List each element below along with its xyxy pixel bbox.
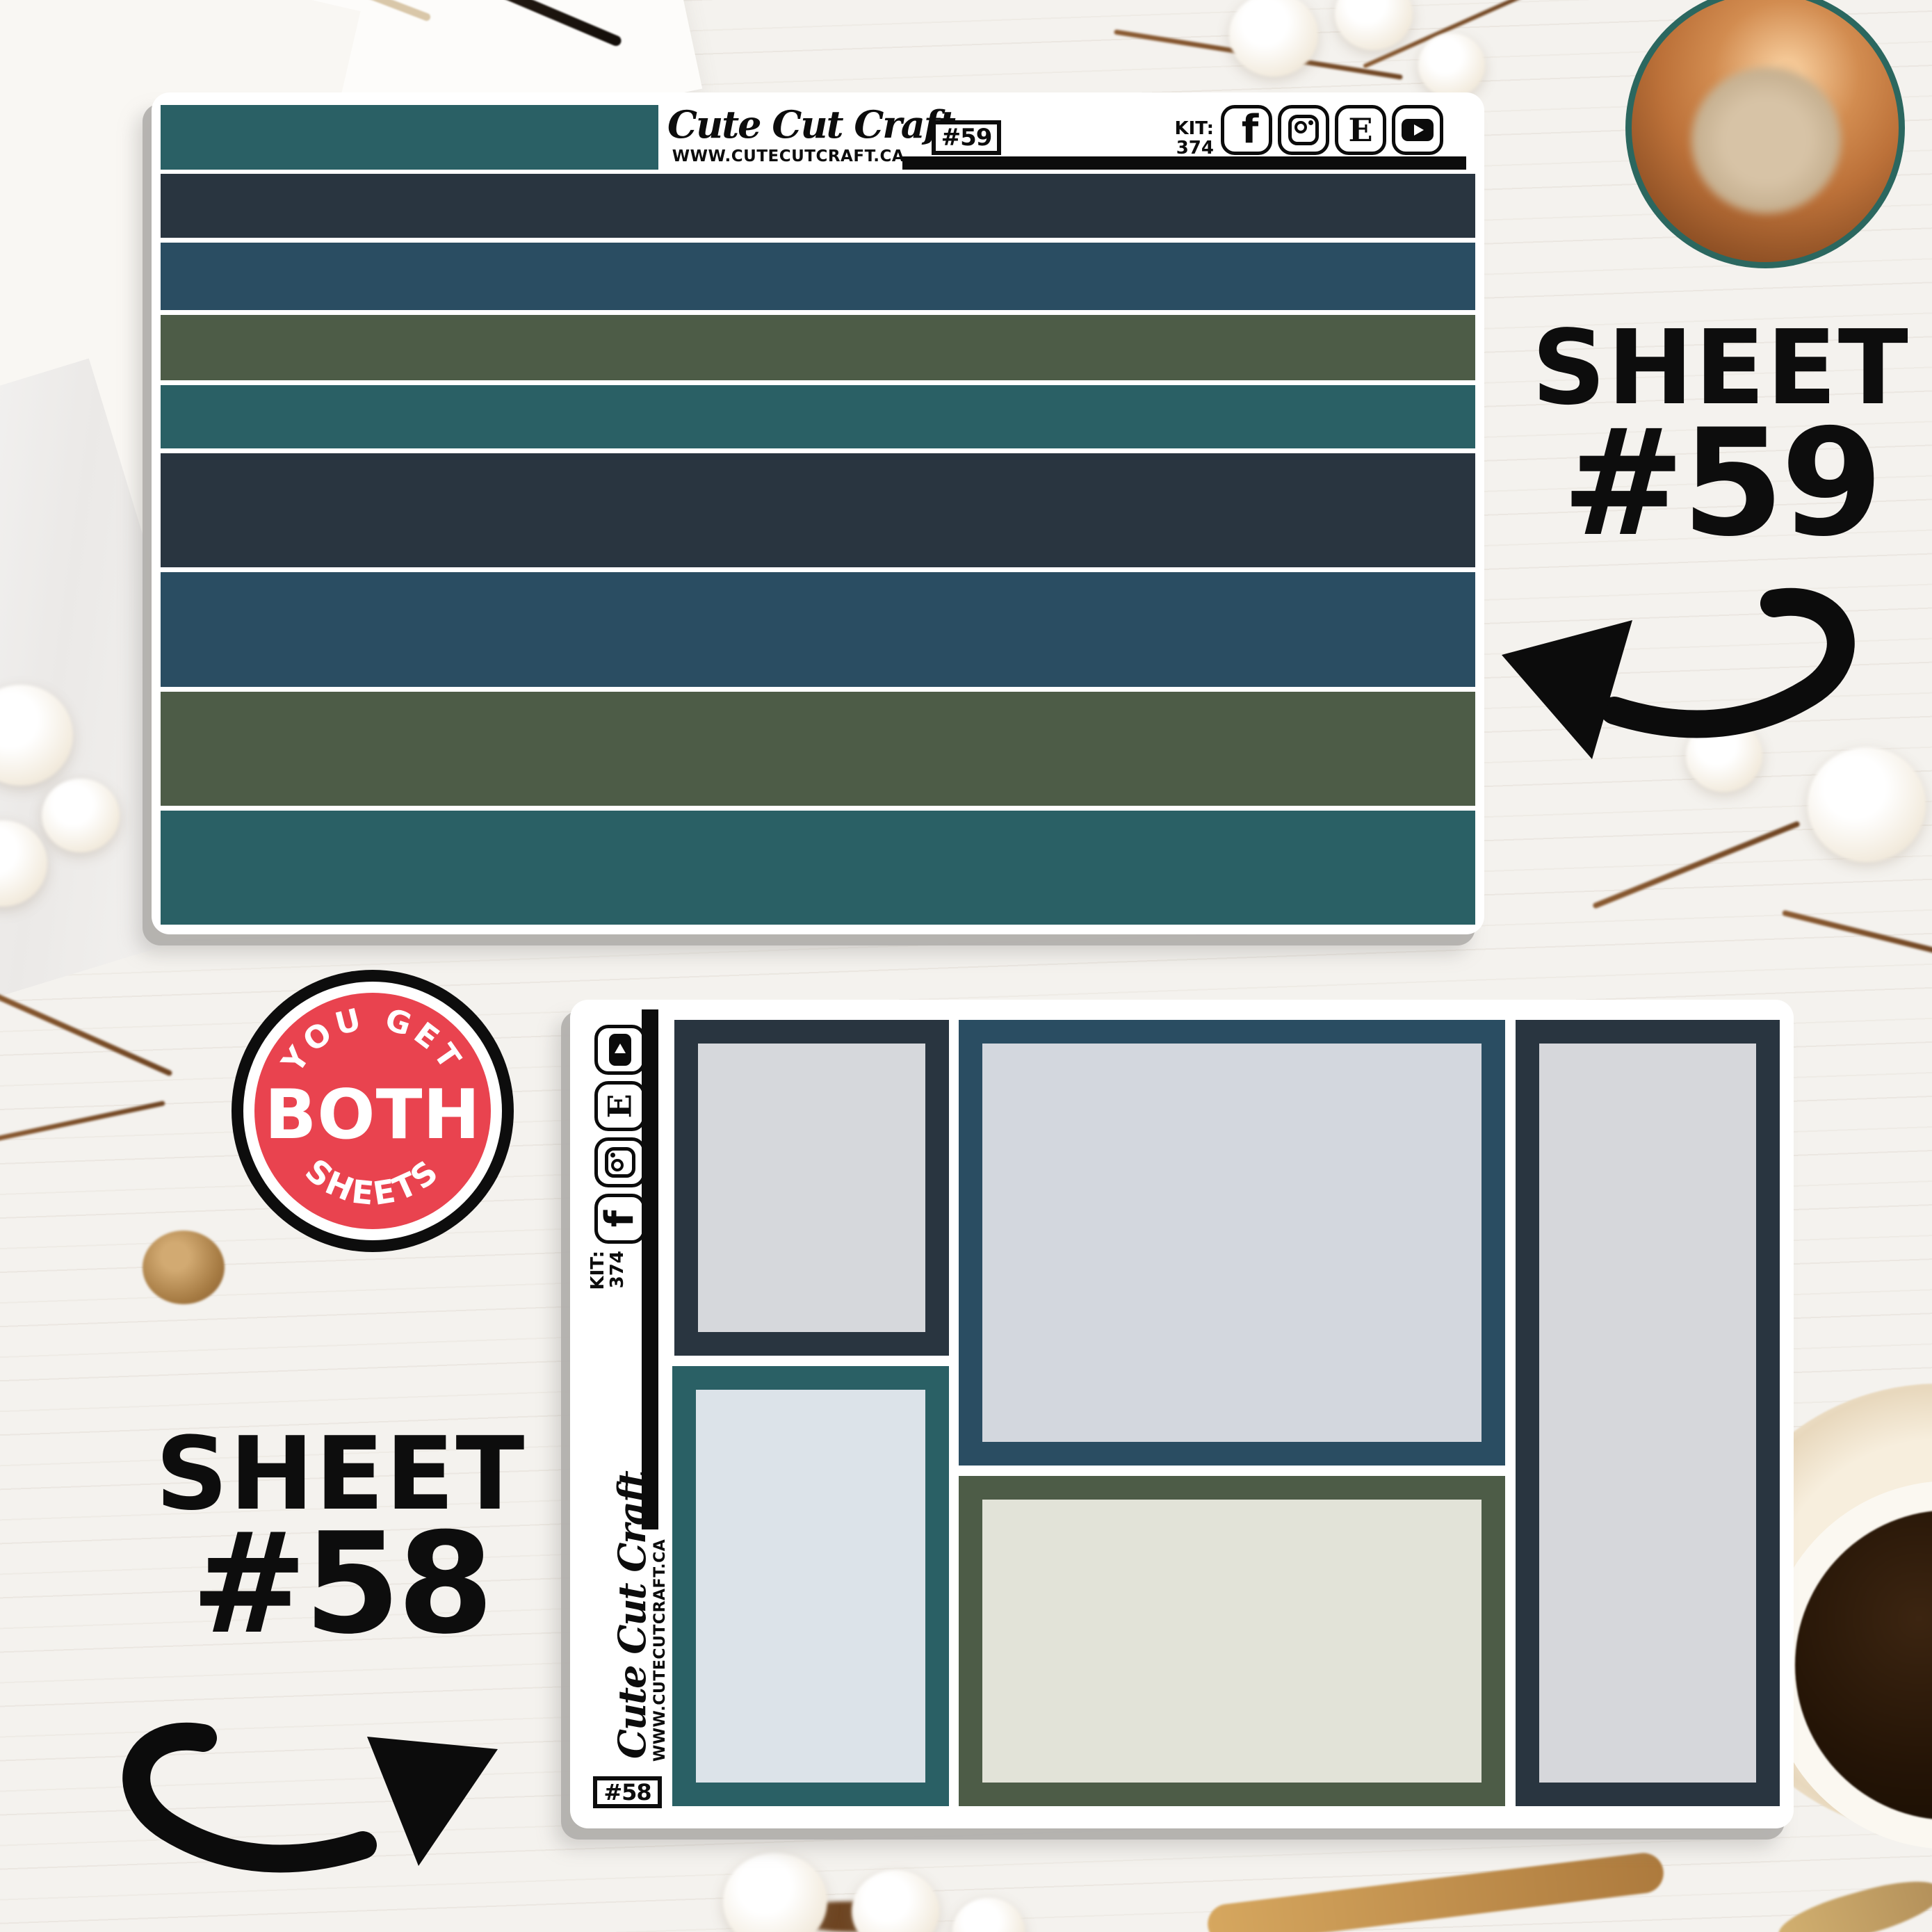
sticker-box-bottom-left [672,1366,949,1806]
cotton-boll [42,779,120,852]
sticker-strip-navy [161,453,1475,567]
facebook-icon: f [1221,105,1272,155]
youtube-icon [1392,105,1443,155]
sticker-strip-blue [161,572,1475,687]
sheet59-callout: SHEET #59 [1512,316,1929,557]
copper-bowl [1625,0,1905,268]
callout-number: #58 [139,1515,542,1654]
brand-logo: Cute Cut Craft [667,101,909,148]
sticker-strip-teal [161,385,1475,448]
sticker-sheet-59: Cute Cut Craft WWW.CUTECUTCRAFT.CA #59 K… [152,92,1484,934]
brand-website: WWW.CUTECUTCRAFT.CA [667,148,909,165]
product-listing-image: Cute Cut Craft WWW.CUTECUTCRAFT.CA #59 K… [0,0,1932,1932]
social-icons-row: f E [1221,105,1443,155]
badge-line2: BOTH [265,1075,481,1155]
walnut [143,1231,225,1304]
sheet-number-text: #59 [941,124,992,152]
copper-bowl-bottom [1691,67,1841,213]
sticker-strip-blue [161,243,1475,310]
sticker-box-bottom-center [959,1476,1505,1806]
sticker-strip-teal [161,811,1475,925]
sheet58-callout: SHEET #58 [139,1424,542,1654]
etsy-icon: E [1335,105,1386,155]
instagram-icon [1278,105,1329,155]
kit-label: KIT: [1144,119,1214,138]
callout-number: #59 [1512,409,1929,557]
sticker-strip-olive [161,692,1475,806]
sticker-sheet-58: E f KIT: 374 Cute Cut Craft WWW.CUTECUTC… [570,1000,1794,1828]
sheet59-header-strip [161,105,658,170]
you-get-both-sheets-badge: YOU GET BOTH SHEETS [229,968,516,1254]
cotton-boll [1418,33,1485,97]
sticker-strip-navy [161,174,1475,238]
brand-logo-block: Cute Cut Craft WWW.CUTECUTCRAFT.CA [667,101,909,170]
kit-number-block: KIT: 374 [1144,119,1214,161]
sticker-box-top-center [959,1020,1505,1466]
sheet-number-badge: #59 [932,120,1001,155]
sheet59-strips [161,174,1475,925]
sheet58-boxes [570,1000,1794,1828]
cotton-boll [1686,720,1762,792]
sticker-box-top-left [674,1020,949,1356]
kit-number: 374 [1144,138,1214,158]
sticker-strip-olive [161,315,1475,380]
cotton-boll [1808,747,1926,862]
sticker-box-right-tall [1516,1020,1780,1806]
